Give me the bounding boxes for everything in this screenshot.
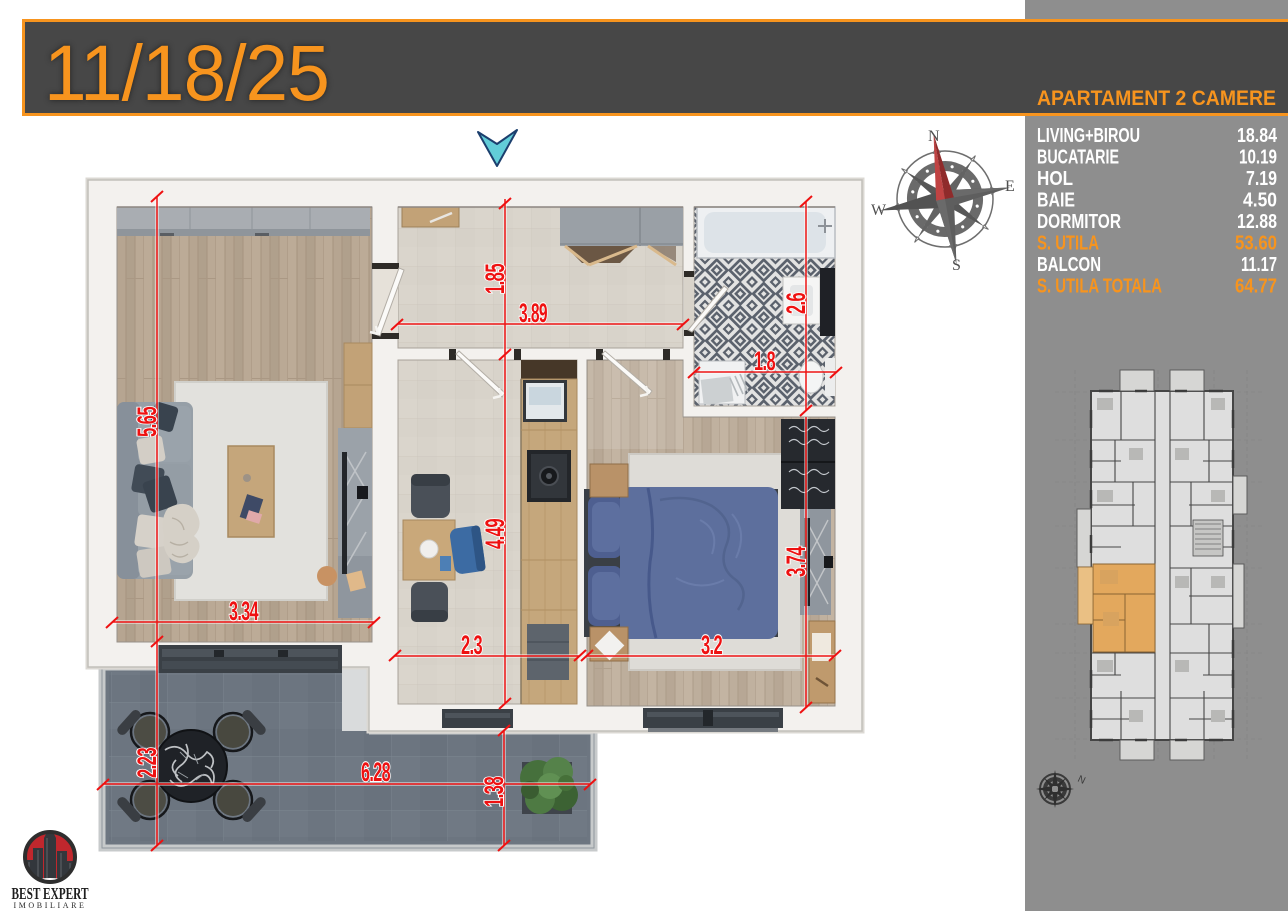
svg-text:N: N xyxy=(1076,774,1087,787)
svg-text:3.2: 3.2 xyxy=(701,630,722,660)
svg-text:2.3: 2.3 xyxy=(461,630,483,660)
svg-text:S. UTILA TOTALA: S. UTILA TOTALA xyxy=(1037,276,1162,298)
svg-text:W: W xyxy=(871,202,887,219)
svg-text:3.34: 3.34 xyxy=(229,596,259,626)
svg-text:4.49: 4.49 xyxy=(480,518,510,549)
svg-text:E: E xyxy=(1005,178,1015,195)
svg-text:18.84: 18.84 xyxy=(1237,125,1278,147)
svg-text:1.38: 1.38 xyxy=(479,776,509,807)
svg-text:6.28: 6.28 xyxy=(361,757,391,787)
svg-text:LIVING+BIROU: LIVING+BIROU xyxy=(1037,125,1140,147)
svg-text:1.85: 1.85 xyxy=(480,263,510,294)
svg-text:DORMITOR: DORMITOR xyxy=(1037,211,1121,233)
svg-text:S. UTILA: S. UTILA xyxy=(1037,233,1099,255)
svg-text:HOL: HOL xyxy=(1037,168,1073,190)
svg-text:N: N xyxy=(928,128,940,145)
svg-text:1.8: 1.8 xyxy=(754,346,776,376)
svg-text:3.74: 3.74 xyxy=(781,546,811,577)
svg-text:12.88: 12.88 xyxy=(1237,211,1277,233)
svg-text:2.6: 2.6 xyxy=(781,292,811,314)
svg-text:IMOBILIARE: IMOBILIARE xyxy=(13,901,86,910)
svg-text:53.60: 53.60 xyxy=(1235,233,1277,255)
svg-text:11.17: 11.17 xyxy=(1241,254,1277,276)
svg-text:2.23: 2.23 xyxy=(132,747,162,778)
svg-text:3.89: 3.89 xyxy=(519,298,548,328)
svg-text:S: S xyxy=(952,257,961,274)
svg-text:5.65: 5.65 xyxy=(132,406,162,437)
svg-text:7.19: 7.19 xyxy=(1246,168,1277,190)
svg-text:BAIE: BAIE xyxy=(1037,190,1075,212)
svg-text:4.50: 4.50 xyxy=(1243,190,1277,212)
svg-text:10.19: 10.19 xyxy=(1239,147,1277,169)
svg-text:APARTAMENT 2 CAMERE: APARTAMENT 2 CAMERE xyxy=(1037,87,1276,110)
svg-text:BUCATARIE: BUCATARIE xyxy=(1037,147,1119,169)
svg-text:64.77: 64.77 xyxy=(1235,276,1277,298)
svg-text:BALCON: BALCON xyxy=(1037,254,1101,276)
